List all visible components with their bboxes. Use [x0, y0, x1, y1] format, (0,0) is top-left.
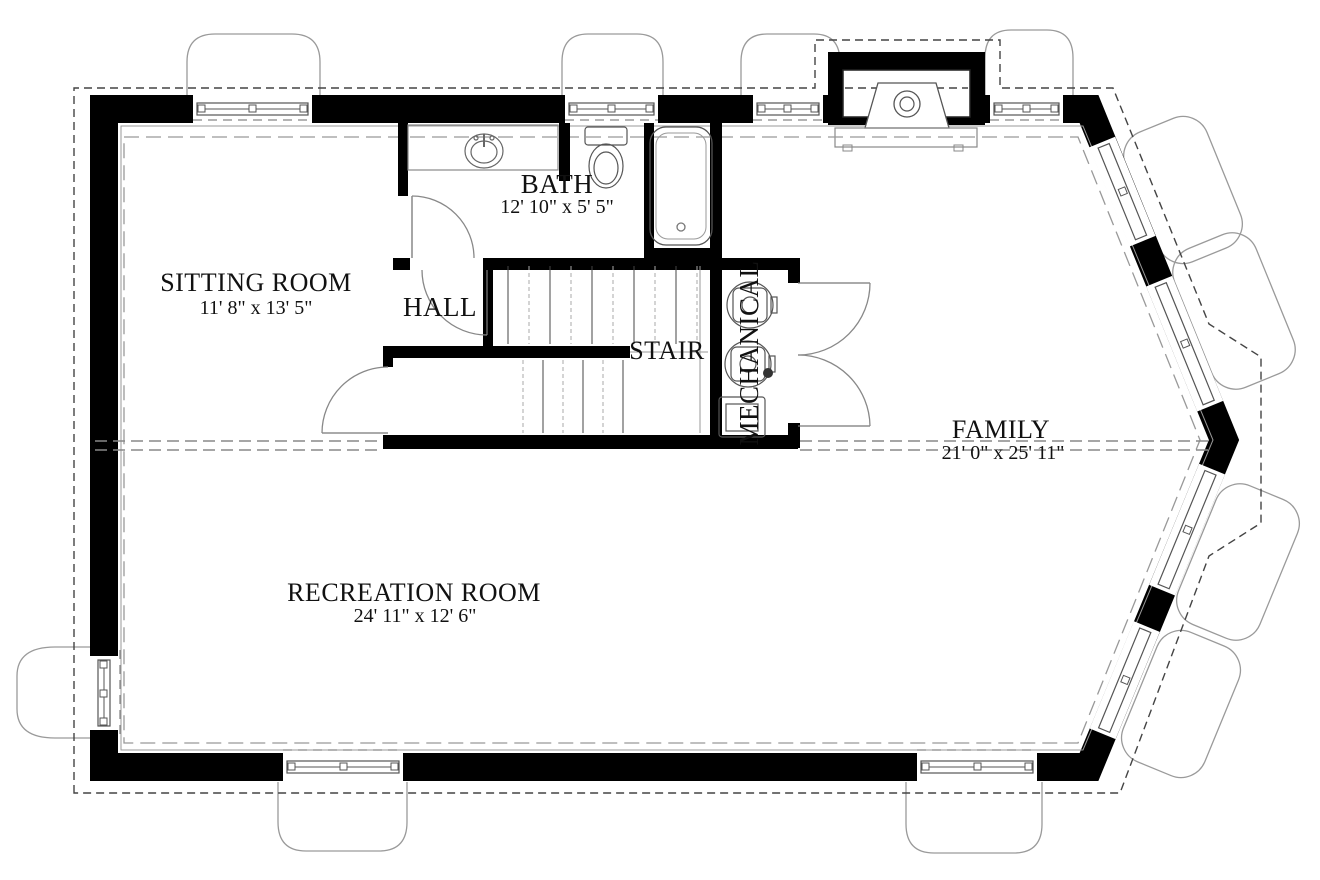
room-label-mechanical: MECHANICAL: [734, 261, 764, 446]
room-label-sitting: SITTING ROOM: [160, 268, 352, 297]
room-label-family: FAMILY: [952, 415, 1050, 444]
room-dims-sitting: 11' 8" x 13' 5": [200, 297, 313, 319]
room-label-stair: STAIR: [629, 336, 705, 365]
window: [193, 95, 312, 123]
floor-drain: [763, 368, 773, 378]
window: [283, 750, 403, 781]
window: [917, 750, 1037, 781]
window-well: [187, 34, 320, 96]
window: [753, 95, 823, 123]
window-well: [562, 34, 663, 96]
window: [90, 650, 120, 736]
window: [990, 95, 1063, 123]
room-label-hall: HALL: [403, 292, 477, 322]
floor-plan-page: SITTING ROOM 11' 8" x 13' 5" BATH 12' 10…: [0, 0, 1320, 880]
floor-plan-drawing: SITTING ROOM 11' 8" x 13' 5" BATH 12' 10…: [0, 0, 1320, 880]
window-well: [741, 34, 840, 96]
window: [565, 95, 658, 123]
room-label-bath: BATH: [521, 169, 594, 199]
room-dims-recreation: 24' 11" x 12' 6": [354, 605, 477, 627]
window-well: [17, 647, 91, 738]
room-dims-family: 21' 0" x 25' 11": [942, 442, 1065, 464]
room-dims-bath: 12' 10" x 5' 5": [500, 196, 614, 218]
room-label-recreation: RECREATION ROOM: [287, 578, 541, 607]
firebox-flue: [894, 91, 920, 117]
